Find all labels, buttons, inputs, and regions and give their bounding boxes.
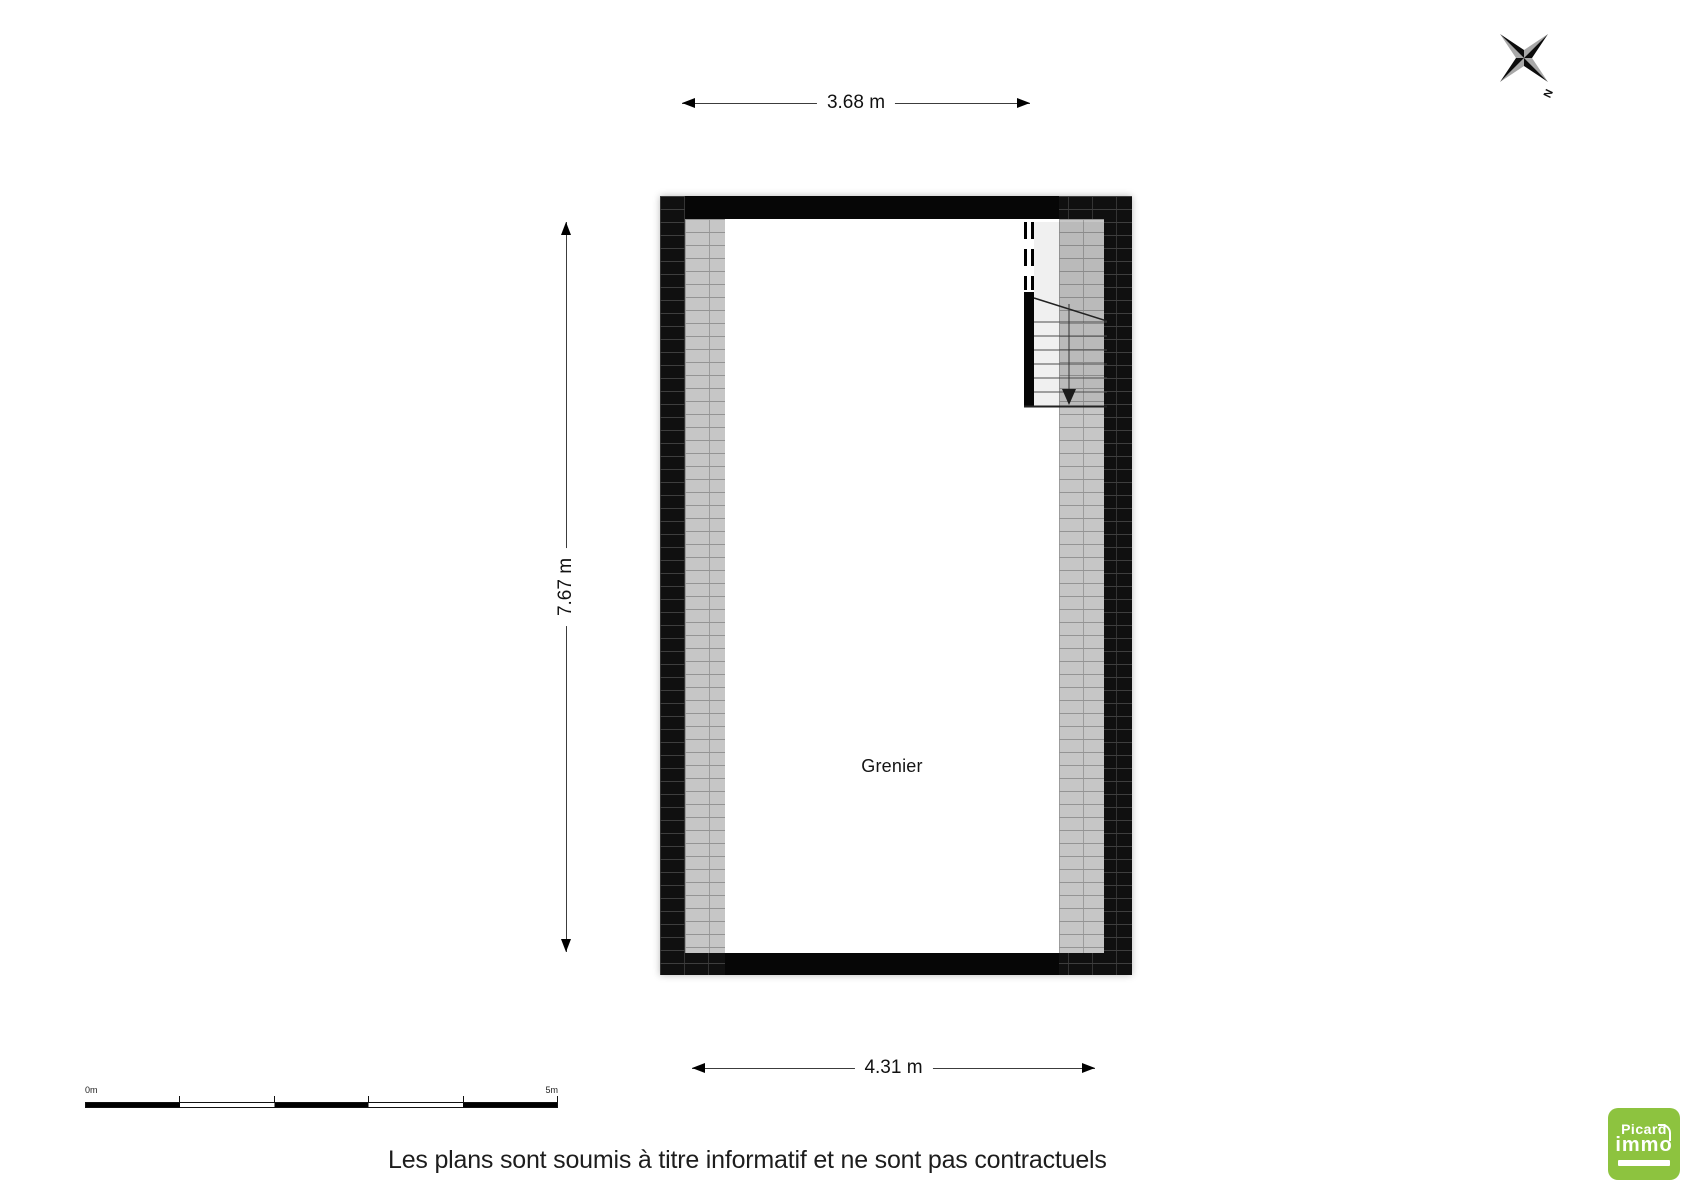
dimension-left-label: 7.67 m [555, 548, 577, 626]
dimension-top: 3.68 m [682, 96, 1030, 110]
scale-label-start: 0m [85, 1085, 98, 1095]
arrow-right-icon [1082, 1063, 1095, 1073]
arrow-left-icon [682, 98, 695, 108]
stair-wall-stub [1024, 292, 1034, 407]
floor-plan: Grenier [660, 196, 1132, 975]
brand-logo: Picard immo [1608, 1108, 1680, 1180]
room-interior [725, 219, 1059, 953]
arrow-left-icon [692, 1063, 705, 1073]
bottom-wall [725, 953, 1059, 975]
inner-wall-left [685, 219, 725, 953]
logo-bubble-corner-icon [1658, 1124, 1671, 1141]
dimension-left: 7.67 m [559, 222, 573, 952]
compass-rose: N [1484, 22, 1564, 104]
arrow-down-icon [561, 939, 571, 952]
room-label: Grenier [725, 756, 1059, 777]
dimension-bottom: 4.31 m [692, 1061, 1095, 1075]
scale-bar: 0m 5m [85, 1085, 558, 1110]
scale-bar-segments [85, 1102, 558, 1108]
disclaimer-text: Les plans sont soumis à titre informatif… [388, 1146, 1107, 1175]
dimension-top-label: 3.68 m [817, 92, 895, 114]
compass-star-icon: N [1484, 22, 1564, 104]
top-wall [685, 196, 1059, 219]
staircase [1024, 222, 1107, 408]
logo-tagline-strip [1618, 1160, 1670, 1166]
arrow-up-icon [561, 222, 571, 235]
scale-label-end: 5m [545, 1085, 558, 1095]
compass-north-label: N [1540, 87, 1554, 99]
arrow-right-icon [1017, 98, 1030, 108]
dimension-bottom-label: 4.31 m [854, 1057, 932, 1079]
stairwell-overlay [1034, 222, 1107, 407]
